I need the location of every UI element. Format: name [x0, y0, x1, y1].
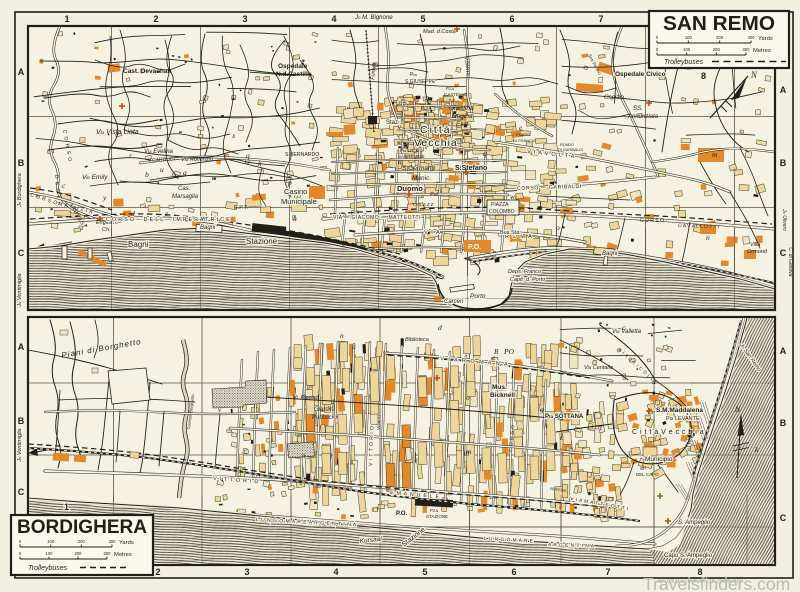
svg-text:Cas.: Cas.: [178, 186, 190, 192]
svg-text:P.O.: P.O.: [396, 511, 408, 517]
svg-text:u: u: [398, 157, 402, 166]
svg-text:N.d.Castille: N.d.Castille: [276, 71, 312, 78]
svg-text:BORDIGHERA: BORDIGHERA: [17, 517, 147, 538]
svg-text:a: a: [352, 342, 356, 351]
svg-text:Pal.: Pal.: [430, 192, 439, 198]
svg-text:DI GARIBALDI: DI GARIBALDI: [558, 148, 583, 152]
svg-text:SANREMESI: SANREMESI: [398, 154, 425, 159]
svg-text:q: q: [483, 149, 487, 158]
svg-text:300: 300: [743, 47, 751, 52]
svg-text:Ospedale: Ospedale: [278, 63, 308, 70]
svg-text:Porto: Porto: [470, 293, 486, 300]
svg-text:Giardini: Giardini: [314, 407, 335, 413]
svg-text:V I A: V I A: [424, 230, 441, 236]
svg-text:Bicknell: Bicknell: [490, 392, 515, 399]
svg-text:g: g: [183, 168, 187, 177]
svg-text:u: u: [652, 377, 656, 386]
svg-text:1: 1: [64, 14, 69, 24]
svg-text:S.BERNARDO: S.BERNARDO: [285, 152, 319, 158]
svg-text:300: 300: [748, 35, 756, 40]
svg-text:SS.: SS.: [633, 106, 643, 112]
svg-text:Elec: Elec: [456, 121, 469, 128]
svg-text:B: B: [18, 158, 25, 168]
svg-text:100: 100: [47, 539, 55, 544]
svg-text:Duomo: Duomo: [397, 184, 423, 193]
svg-text:N: N: [734, 405, 741, 414]
svg-text:Municipio: Municipio: [645, 456, 673, 463]
svg-text:PIAZZA: PIAZZA: [491, 202, 509, 208]
svg-text:4: 4: [333, 567, 338, 577]
svg-text:Jo Bordighera: Jo Bordighera: [17, 173, 23, 207]
svg-text:3: 3: [242, 14, 247, 24]
svg-text:Deps. Franco: Deps. Franco: [508, 269, 541, 275]
svg-text:200: 200: [78, 539, 86, 544]
svg-text:C: C: [18, 248, 25, 258]
svg-text:300: 300: [109, 539, 117, 544]
svg-text:S.GIUSEPPE: S.GIUSEPPE: [405, 79, 436, 85]
svg-text:g: g: [540, 405, 544, 414]
svg-text:Ch.: Ch.: [102, 227, 111, 233]
svg-text:Staz.: Staz.: [386, 120, 400, 126]
svg-text:Cast. Devachan: Cast. Devachan: [123, 68, 171, 75]
svg-text:100: 100: [685, 35, 693, 40]
svg-text:4: 4: [331, 14, 336, 24]
svg-text:Giardino: Giardino: [449, 105, 474, 112]
svg-text:Ormond: Ormond: [747, 249, 768, 255]
svg-text:Trolleybuses: Trolleybuses: [28, 565, 68, 572]
svg-text:h: h: [293, 214, 297, 223]
svg-text:y: y: [102, 193, 107, 202]
svg-text:5: 5: [420, 14, 425, 24]
svg-text:Jo M. Bignone: Jo M. Bignone: [354, 15, 393, 21]
svg-text:200: 200: [716, 35, 724, 40]
svg-text:C O R S O: C O R S O: [640, 218, 664, 224]
svg-text:R: R: [493, 347, 499, 356]
svg-text:b: b: [145, 170, 149, 179]
svg-text:A: A: [18, 67, 25, 77]
svg-text:Bagni: Bagni: [602, 251, 618, 257]
svg-text:z: z: [164, 209, 168, 218]
svg-text:S.Germano: S.Germano: [402, 165, 436, 172]
svg-text:200: 200: [713, 47, 721, 52]
svg-text:N: N: [750, 70, 758, 80]
svg-text:Stazione: Stazione: [246, 237, 278, 246]
svg-text:Yards: Yards: [758, 36, 773, 42]
svg-text:s: s: [342, 239, 345, 248]
svg-text:A: A: [780, 346, 787, 356]
svg-text:Marsaglia: Marsaglia: [172, 194, 199, 200]
svg-text:Città: Città: [420, 124, 452, 136]
svg-text:B: B: [780, 418, 787, 428]
svg-text:E.P.T.: E.P.T.: [234, 205, 248, 211]
svg-text:Bus Sta.: Bus Sta.: [500, 230, 521, 236]
svg-text:P.O.: P.O.: [468, 244, 481, 251]
svg-text:Munic.: Munic.: [412, 175, 431, 182]
svg-text:C. di Genova: C. di Genova: [787, 247, 793, 276]
svg-text:n: n: [340, 331, 344, 340]
svg-text:Municipale: Municipale: [281, 197, 317, 206]
svg-text:Trolleybuses: Trolleybuses: [664, 59, 704, 66]
svg-text:S.M.Maddalena: S.M.Maddalena: [656, 407, 703, 414]
svg-text:COLOMBO: COLOMBO: [489, 209, 515, 215]
svg-text:u: u: [160, 165, 164, 174]
svg-text:Casino: Casino: [284, 187, 307, 196]
svg-text:7: 7: [605, 567, 610, 577]
svg-text:7: 7: [598, 14, 603, 24]
svg-text:C O R S O — D E L L — I M P E: C O R S O — D E L L — I M P E R A T R I …: [106, 217, 230, 223]
svg-text:Jo Ulivero: Jo Ulivero: [781, 208, 787, 231]
svg-text:2: 2: [155, 567, 160, 577]
svg-text:300: 300: [104, 551, 112, 556]
svg-text:SP.: SP.: [640, 466, 647, 471]
svg-text:Capo S. Ampeglio: Capo S. Ampeglio: [664, 553, 713, 559]
svg-text:B: B: [780, 158, 787, 168]
svg-text:SAN REMO: SAN REMO: [663, 13, 775, 35]
svg-text:r: r: [129, 151, 132, 160]
svg-text:A: A: [18, 342, 25, 352]
svg-text:C: C: [780, 513, 787, 523]
svg-text:1: 1: [64, 502, 69, 512]
svg-text:C: C: [18, 487, 25, 497]
svg-text:w: w: [510, 192, 515, 201]
svg-text:Mad. d.Costa: Mad. d.Costa: [423, 29, 456, 35]
svg-text:A: A: [780, 85, 787, 95]
svg-text:Metres: Metres: [753, 48, 771, 54]
svg-text:PZA: PZA: [446, 86, 454, 91]
svg-text:r: r: [560, 433, 563, 442]
svg-text:p: p: [287, 178, 292, 187]
svg-text:Pta LROI: Pta LROI: [400, 148, 418, 153]
svg-text:Regina: Regina: [452, 113, 473, 120]
svg-text:Biblioteca: Biblioteca: [405, 337, 429, 343]
svg-text:8: 8: [701, 71, 706, 81]
svg-text:C: C: [780, 248, 787, 258]
svg-text:B: B: [18, 416, 25, 426]
svg-text:VENETO: VENETO: [376, 415, 382, 430]
svg-text:d: d: [131, 209, 135, 218]
svg-text:o: o: [466, 393, 470, 402]
svg-text:n: n: [706, 233, 710, 242]
svg-text:II: II: [302, 454, 306, 460]
svg-text:Bagni: Bagni: [128, 240, 149, 249]
svg-text:Carceri: Carceri: [444, 299, 464, 305]
svg-text:Travelsfinders.com: Travelsfinders.com: [643, 574, 790, 592]
svg-text:Ospizio: Ospizio: [604, 95, 625, 101]
svg-text:PO: PO: [503, 347, 515, 356]
svg-text:5: 5: [422, 567, 427, 577]
svg-text:j: j: [419, 137, 422, 146]
svg-text:VIA — GIACOMO — MATTEOTTI: VIA — GIACOMO — MATTEOTTI: [333, 215, 421, 221]
svg-text:d: d: [438, 323, 442, 332]
svg-text:S.Stefano: S.Stefano: [455, 165, 487, 172]
svg-text:RONDO: RONDO: [560, 143, 574, 147]
svg-text:o: o: [556, 223, 560, 232]
svg-text:Metres: Metres: [114, 552, 132, 558]
svg-text:6: 6: [509, 14, 514, 24]
svg-text:CASTELLO: CASTELLO: [444, 92, 468, 97]
svg-text:S. Ampeglio: S. Ampeglio: [678, 520, 711, 526]
svg-text:Pubblici: Pubblici: [312, 415, 334, 421]
svg-text:FONDO: FONDO: [516, 132, 530, 137]
svg-text:3: 3: [244, 567, 249, 577]
svg-text:Bagni: Bagni: [200, 225, 216, 231]
svg-text:x: x: [231, 131, 236, 140]
svg-text:Annunziata: Annunziata: [627, 114, 659, 120]
svg-text:Yards: Yards: [119, 540, 134, 546]
svg-text:200: 200: [75, 551, 83, 556]
svg-text:STAZIONE: STAZIONE: [426, 514, 448, 519]
svg-text:100: 100: [46, 551, 54, 556]
svg-text:PZA: PZA: [430, 508, 438, 513]
svg-text:Ospedale Civico: Ospedale Civico: [615, 71, 666, 78]
svg-text:h: h: [544, 421, 548, 430]
svg-text:DEL CAPO: DEL CAPO: [636, 472, 659, 477]
svg-text:m: m: [712, 150, 718, 159]
svg-text:Jo Ventimiglia: Jo Ventimiglia: [17, 428, 23, 462]
svg-text:DI FRANCIA: DI FRANCIA: [513, 138, 536, 143]
svg-text:q: q: [246, 151, 250, 160]
svg-text:Vle Emily: Vle Emily: [82, 174, 108, 181]
svg-text:a: a: [212, 173, 216, 182]
svg-text:6: 6: [511, 567, 516, 577]
svg-text:III: III: [464, 452, 469, 458]
svg-text:Vla Vista Lieta: Vla Vista Lieta: [96, 129, 139, 136]
svg-text:100: 100: [683, 47, 691, 52]
svg-text:2: 2: [153, 14, 158, 24]
svg-text:Mus.: Mus.: [492, 384, 507, 391]
svg-text:TALAZZ: TALAZZ: [412, 202, 434, 207]
svg-text:Capit. d. Porto: Capit. d. Porto: [510, 277, 545, 283]
svg-text:Jo Ventimiglia: Jo Ventimiglia: [17, 273, 23, 307]
svg-text:Villa: Villa: [750, 242, 760, 248]
